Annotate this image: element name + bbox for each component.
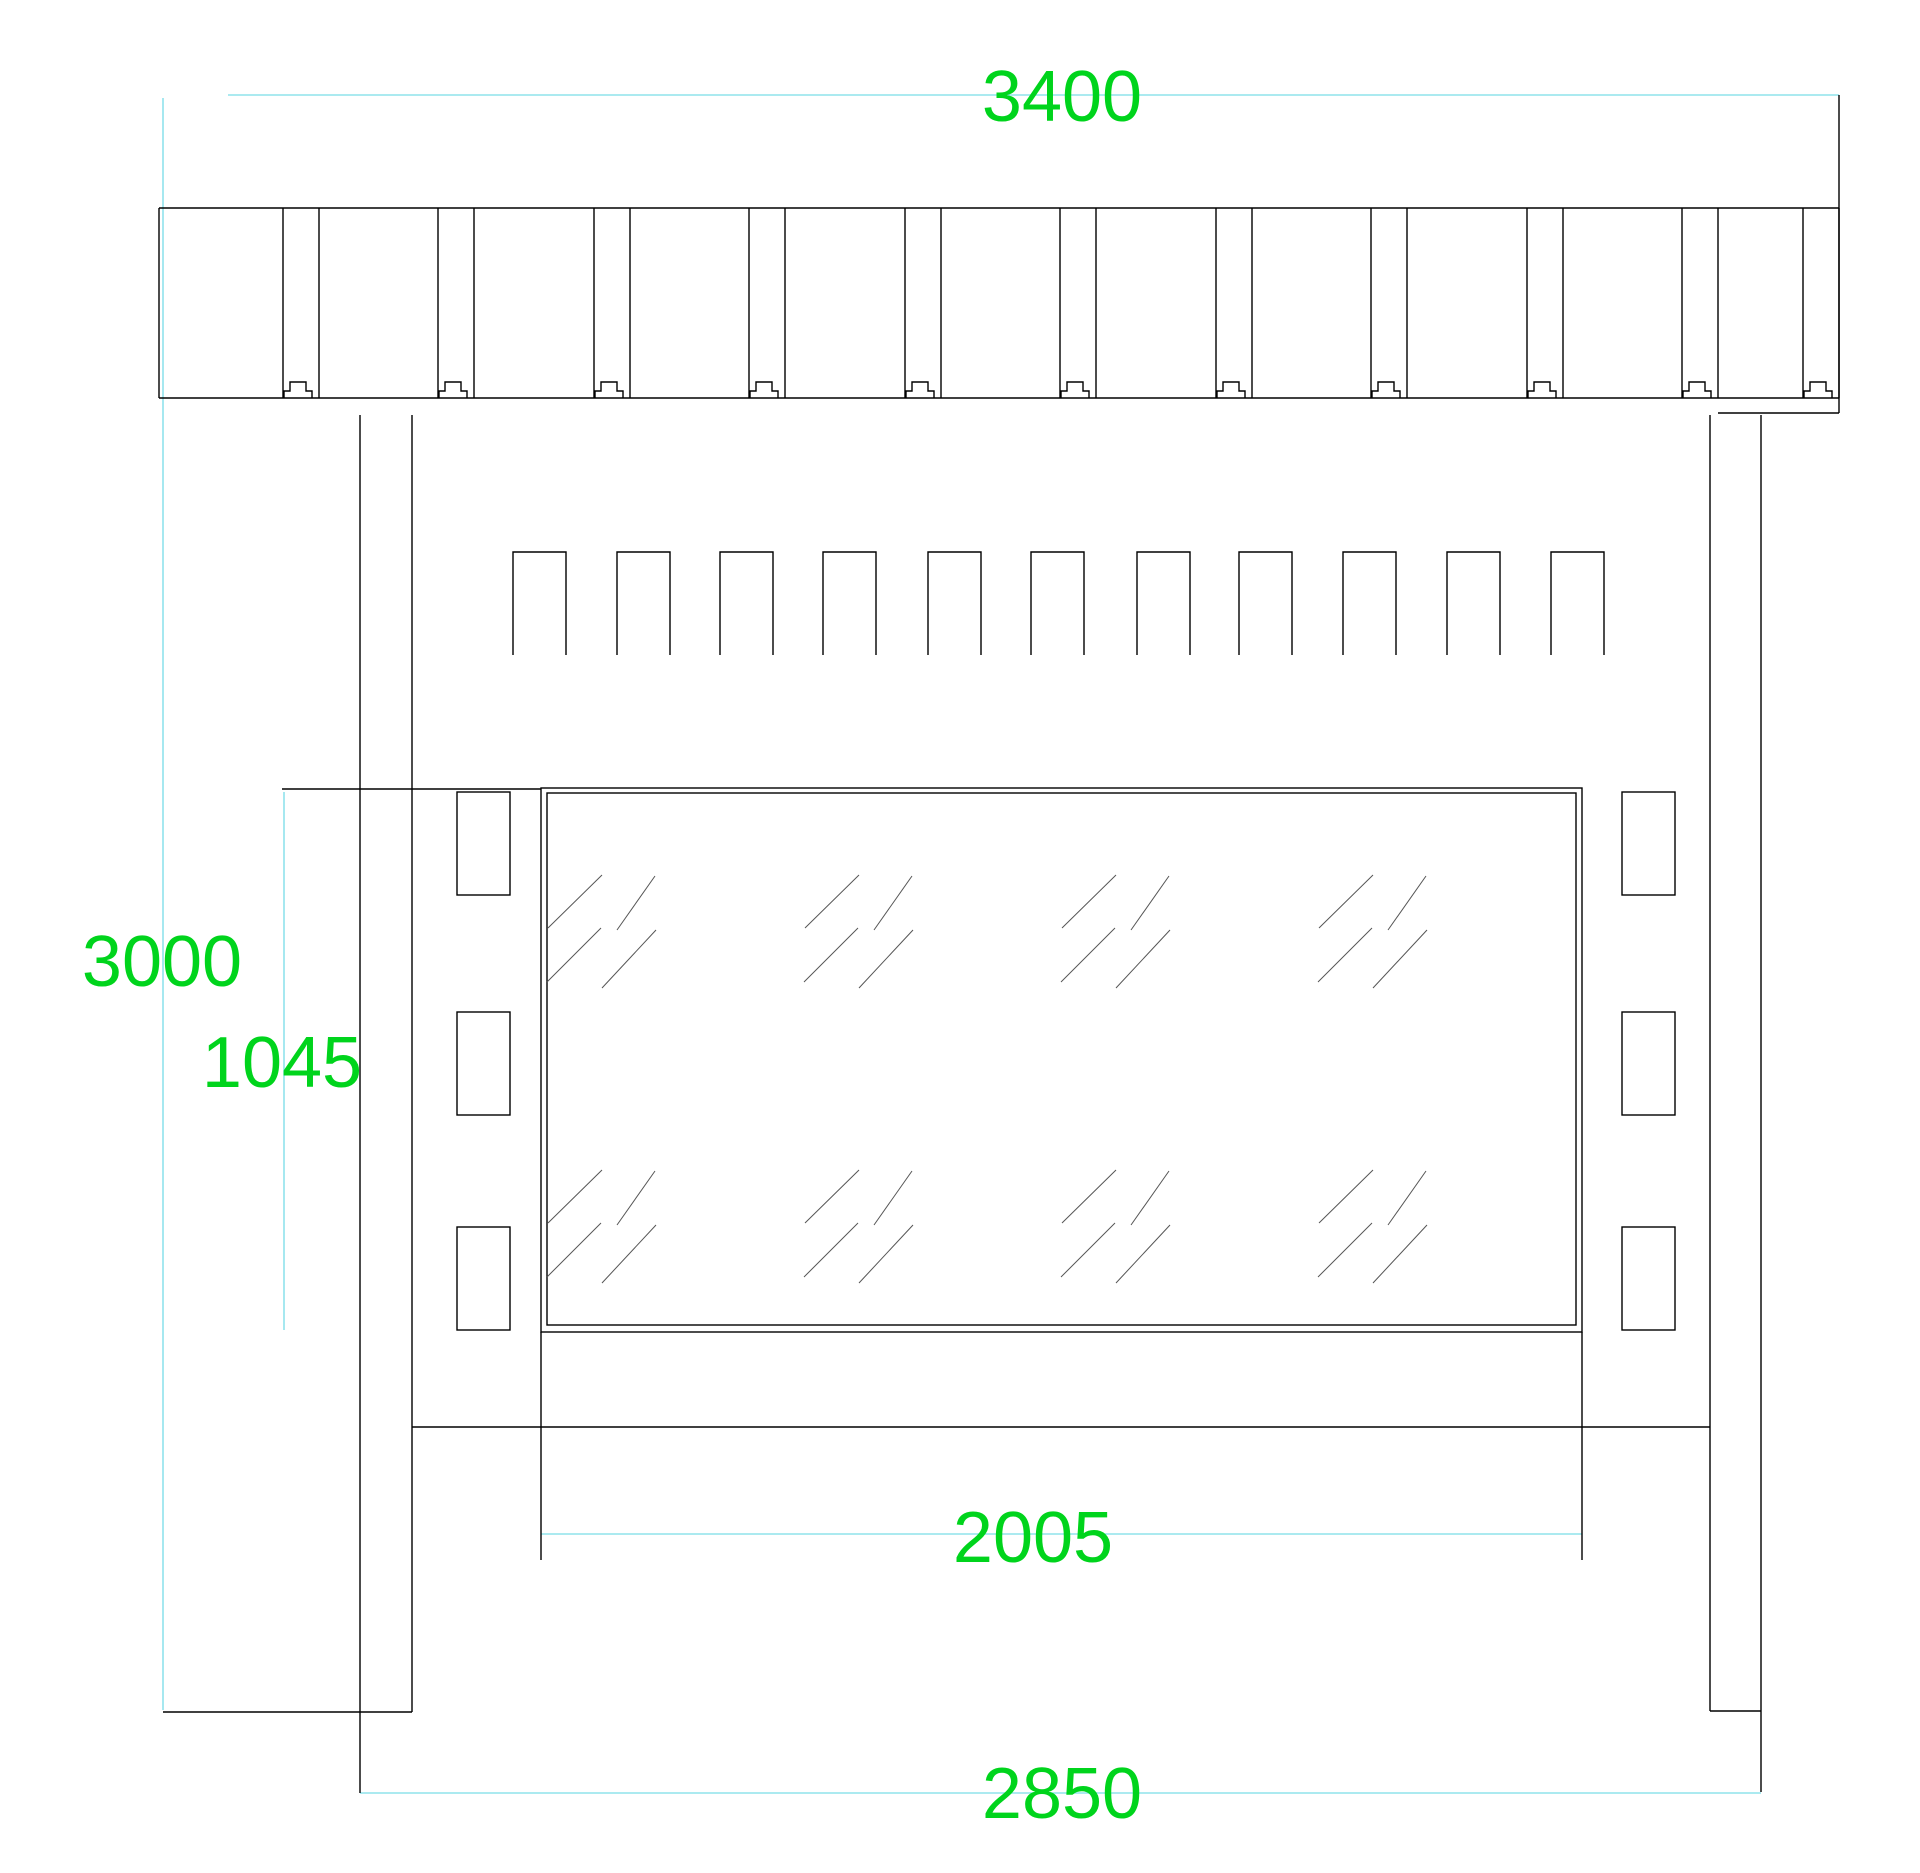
deck-board-gap: [1060, 208, 1096, 398]
deck-board-gap: [1371, 208, 1407, 398]
hatch-cluster: [547, 1170, 656, 1283]
hatch-cluster: [1061, 875, 1170, 988]
bracket: [1622, 792, 1675, 895]
deck-board-gap: [1527, 208, 1563, 398]
deck-board-gap: [438, 208, 474, 398]
purlin: [720, 552, 773, 655]
bracket: [457, 1227, 510, 1330]
bracket: [457, 1012, 510, 1115]
glass-panel: [541, 788, 1582, 1560]
dimension-labels: 3400 3000 1045 2005 2850: [82, 57, 1142, 1834]
bracket-column-right: [1622, 792, 1675, 1330]
purlin: [928, 552, 981, 655]
purlin: [1137, 552, 1190, 655]
glass-inner: [547, 793, 1576, 1325]
hatch-cluster: [804, 1170, 913, 1283]
glass-hatch: [547, 875, 1427, 1283]
purlin: [1447, 552, 1500, 655]
dim-top-width-label: 3400: [982, 57, 1142, 137]
hatch-cluster: [1318, 1170, 1427, 1283]
purlin: [1031, 552, 1084, 655]
deck-board-gap: [1216, 208, 1252, 398]
dim-glass-width-label: 2005: [953, 1498, 1113, 1578]
deck-board-gap: [905, 208, 941, 398]
purlin-row: [513, 552, 1604, 655]
hatch-cluster: [1318, 875, 1427, 988]
purlin: [617, 552, 670, 655]
bracket-column-left: [457, 792, 510, 1330]
bracket: [1622, 1227, 1675, 1330]
glass-outer: [541, 788, 1582, 1332]
deck-board-gap: [1803, 208, 1839, 398]
purlin: [823, 552, 876, 655]
purlin: [513, 552, 566, 655]
hatch-cluster: [804, 875, 913, 988]
bracket: [457, 792, 510, 895]
right-post: [1710, 415, 1761, 1792]
hatch-cluster: [547, 875, 656, 988]
deck-board-gap: [283, 208, 319, 398]
left-post: [360, 415, 412, 1793]
deck-section: [159, 95, 1839, 413]
purlin: [1343, 552, 1396, 655]
cad-canvas: 3400 3000 1045 2005 2850: [0, 0, 1920, 1873]
dim-overall-height-label: 3000: [82, 922, 242, 1002]
deck-board-gap: [1682, 208, 1718, 398]
hatch-cluster: [1061, 1170, 1170, 1283]
dim-glass-height-label: 1045: [202, 1023, 362, 1103]
dim-bottom-width-label: 2850: [982, 1754, 1142, 1834]
bracket: [1622, 1012, 1675, 1115]
cad-drawing-page: 3400 3000 1045 2005 2850: [0, 0, 1920, 1873]
deck-board-gap: [749, 208, 785, 398]
purlin: [1239, 552, 1292, 655]
deck-board-gap: [594, 208, 630, 398]
purlin: [1551, 552, 1604, 655]
